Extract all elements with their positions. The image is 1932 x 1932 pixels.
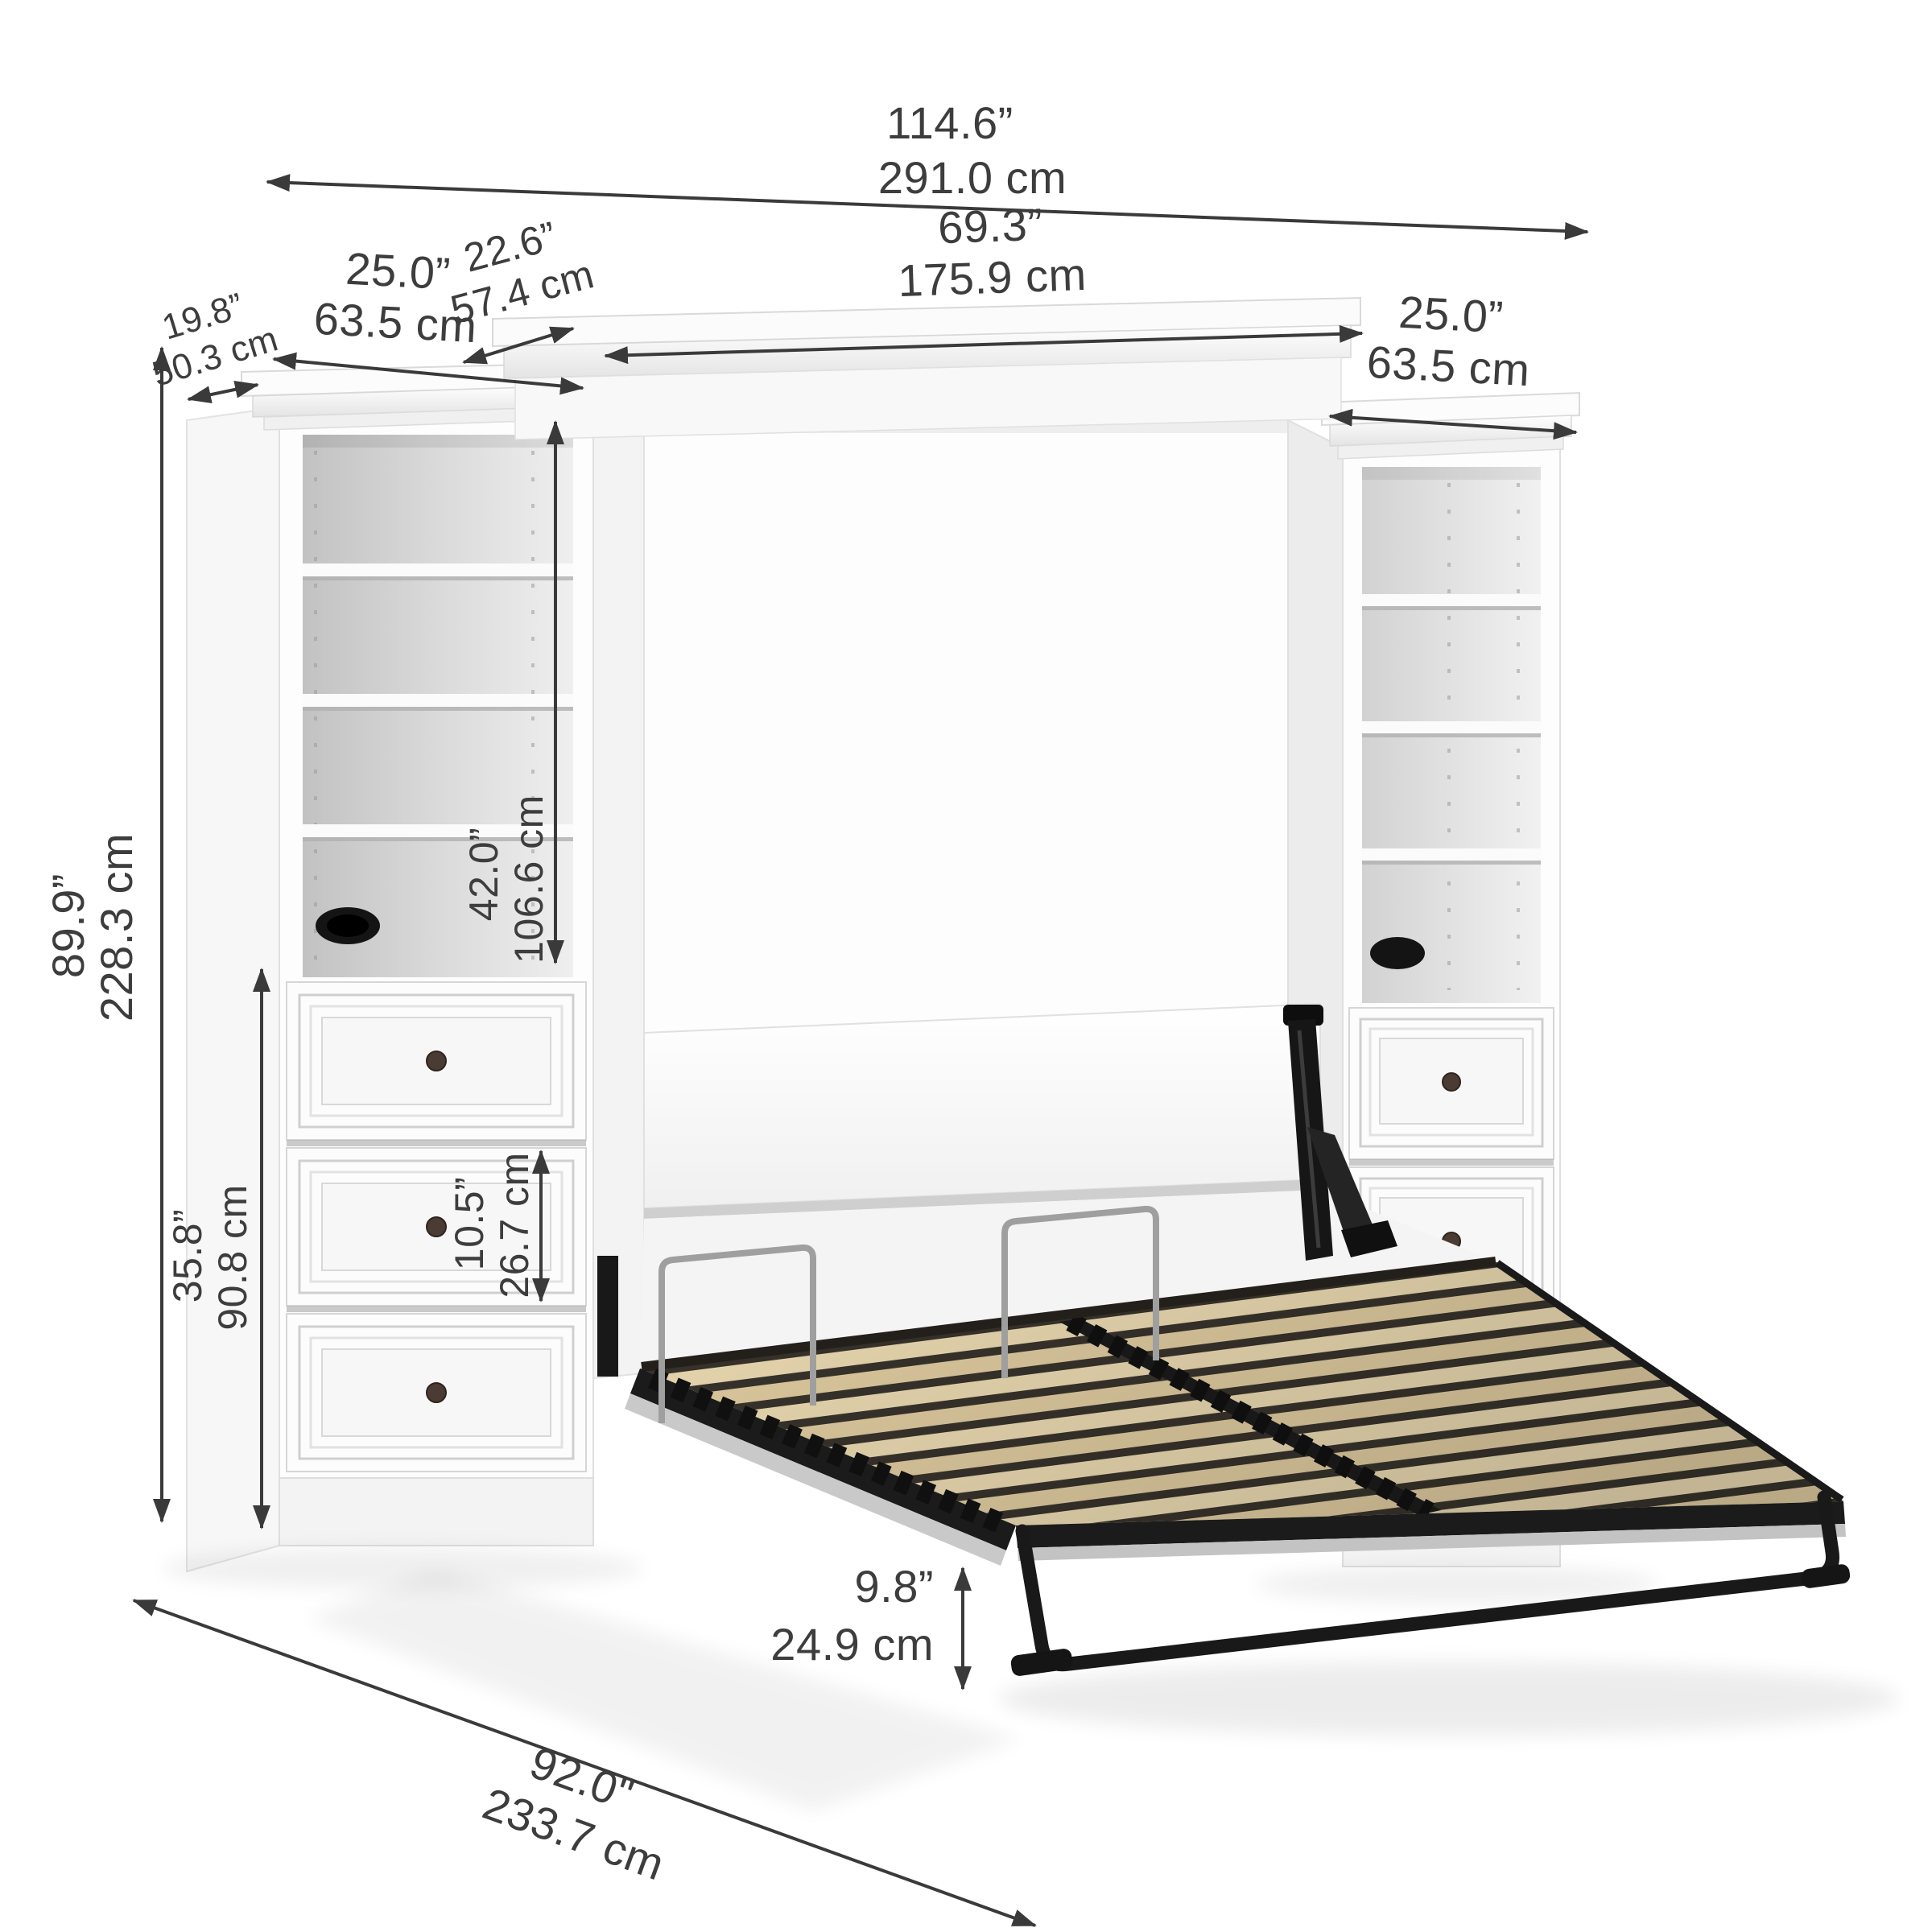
dim-drawer-height-metric: 26.7 cm <box>492 1152 537 1298</box>
foot-pad <box>1801 1563 1851 1589</box>
dim-right-tower-width-inches: 25.0” <box>1397 287 1505 343</box>
shelf <box>303 563 573 580</box>
shelf <box>1362 848 1541 865</box>
dim-drawer-section-height-inches: 35.8” <box>165 1209 210 1302</box>
drawer[interactable] <box>1349 1008 1554 1166</box>
dim-overall-width-metric: 291.0 cm <box>878 152 1067 203</box>
dim-under-bed-clearance-inches: 9.8” <box>855 1561 935 1612</box>
dim-overall-height-metric: 228.3 cm <box>91 833 142 1022</box>
headboard-panel <box>644 1004 1320 1208</box>
left-inner-panel <box>593 419 644 1378</box>
foot-bar-shadow <box>998 1662 1900 1736</box>
drawer-gap <box>287 1306 586 1312</box>
cavity-top-shadow <box>1362 467 1541 480</box>
dimension-diagram: 114.6” 291.0 cm 22.6” 57.4 cm 69.3” 175.… <box>0 0 1932 1932</box>
dim-under-bed-clearance: 9.8” 24.9 cm <box>770 1561 963 1689</box>
dim-drawer-height-inches: 10.5” <box>447 1177 492 1270</box>
shelf <box>303 694 573 711</box>
drawer[interactable] <box>287 982 586 1146</box>
left-pivot-bracket <box>597 1256 618 1377</box>
dim-right-tower-width-metric: 63.5 cm <box>1365 336 1531 396</box>
dim-overall-height-inches: 89.9” <box>43 873 93 978</box>
shelf <box>1362 594 1541 610</box>
drawer-knob[interactable] <box>1443 1073 1460 1091</box>
dim-bed-section-width-metric: 175.9 cm <box>897 249 1087 306</box>
drawer-knob[interactable] <box>427 1383 446 1402</box>
left-storage-tower <box>187 362 617 1571</box>
dim-bed-section-width-inches: 69.3” <box>937 199 1043 254</box>
dim-open-shelf-height-inches: 42.0” <box>461 828 506 921</box>
dim-left-tower-width-inches: 25.0” <box>345 243 452 299</box>
diagram-canvas: 114.6” 291.0 cm 22.6” 57.4 cm 69.3” 175.… <box>0 0 1932 1932</box>
dim-overall-height: 89.9” 228.3 cm <box>43 348 162 1521</box>
right-tower-crown <box>1322 393 1579 459</box>
dim-open-shelf-height-metric: 106.6 cm <box>506 795 551 964</box>
dim-overall-width: 114.6” 291.0 cm <box>267 97 1587 232</box>
dim-left-tower-width-metric: 63.5 cm <box>312 293 478 353</box>
drawer-knob[interactable] <box>427 1217 446 1236</box>
right-shelf-cavity <box>1362 467 1541 1003</box>
dim-drawer-section-height-metric: 90.8 cm <box>210 1184 255 1330</box>
wardrobe-bed-unit <box>161 298 1900 1811</box>
drawer-knob[interactable] <box>427 1051 446 1071</box>
center-back-wall <box>642 412 1290 1040</box>
murphy-bed <box>597 1004 1851 1677</box>
dim-under-bed-clearance-metric: 24.9 cm <box>770 1619 934 1670</box>
left-side-panel <box>187 407 279 1571</box>
dim-overall-width-inches: 114.6” <box>886 97 1013 148</box>
wire-grommet-hole <box>327 914 369 937</box>
center-crown <box>493 298 1360 440</box>
drawer[interactable] <box>287 1314 586 1472</box>
wire-grommet <box>1370 937 1425 969</box>
drawer-gap <box>1349 1159 1554 1166</box>
shelf <box>1362 721 1541 737</box>
drawer-gap <box>287 1140 586 1146</box>
left-base-kick <box>279 1478 593 1546</box>
foot-pad <box>1010 1648 1074 1677</box>
